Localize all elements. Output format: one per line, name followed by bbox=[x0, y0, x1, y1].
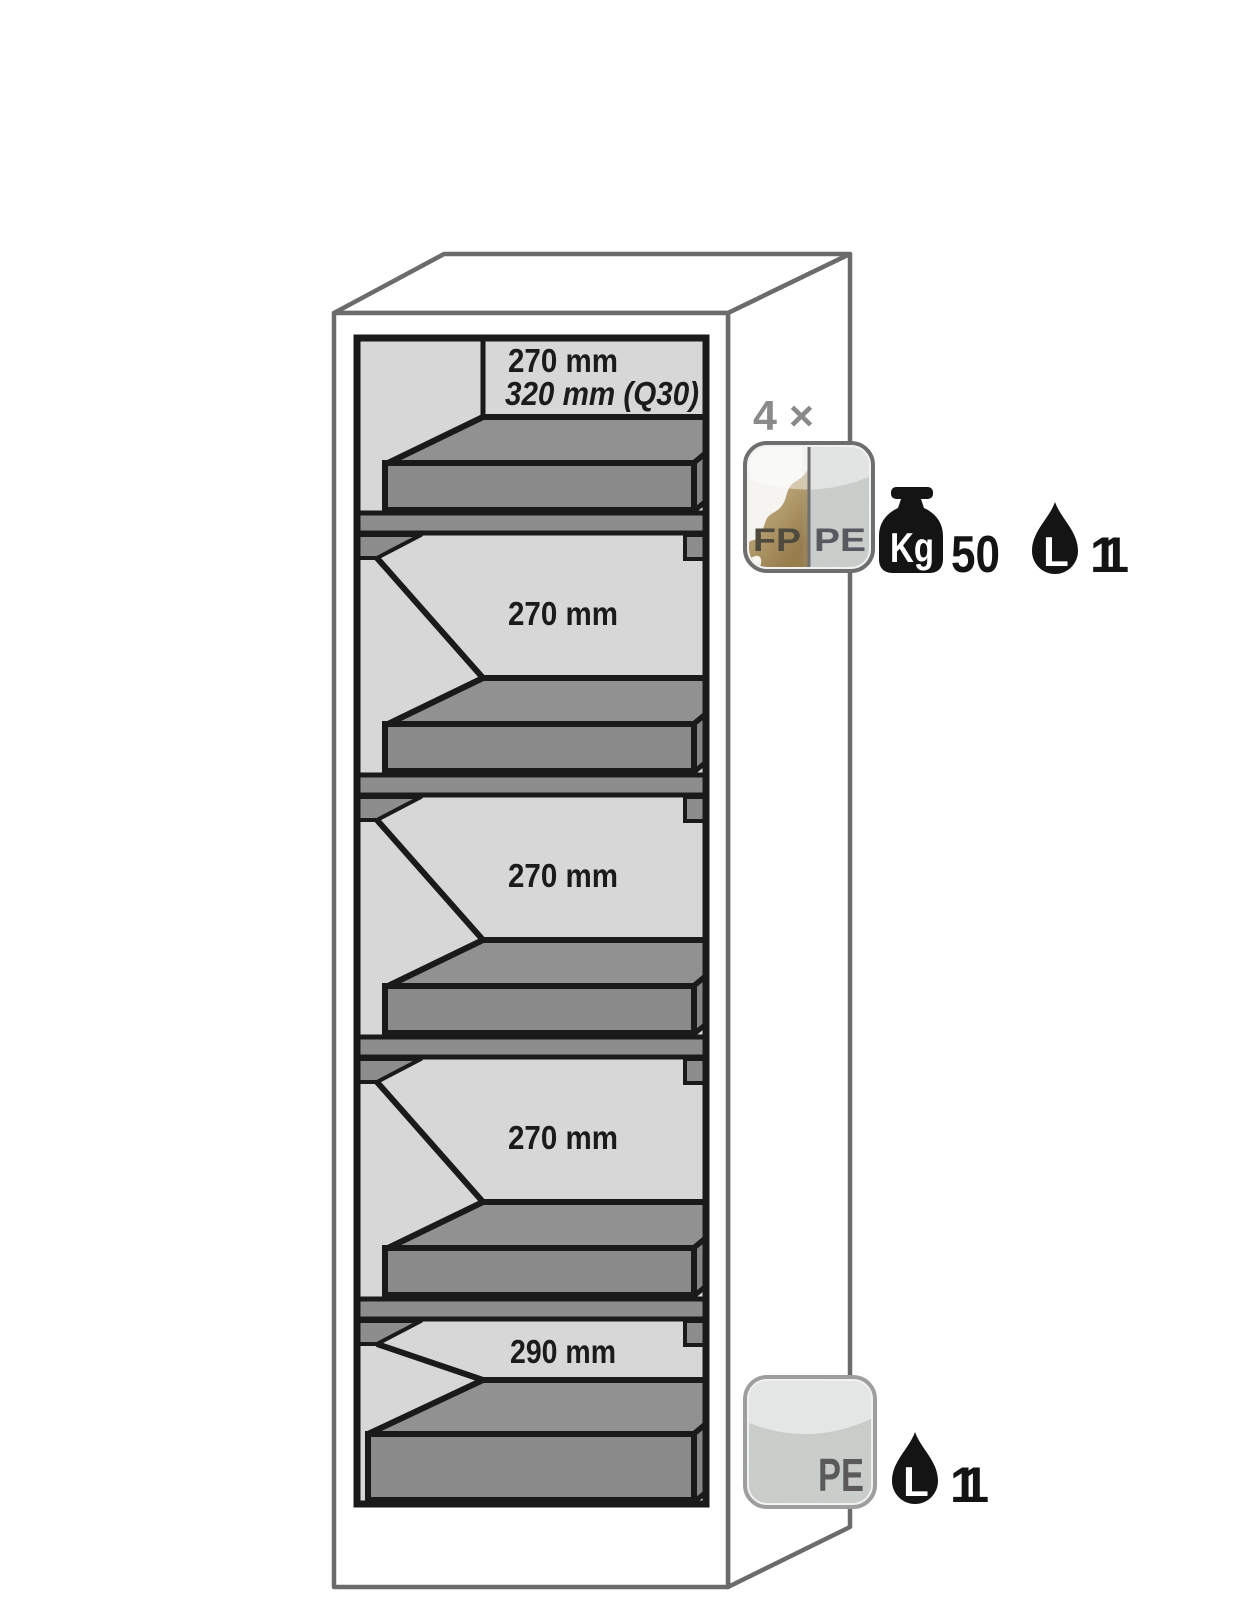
badge-gloss bbox=[749, 1381, 871, 1434]
droplet-icon: L bbox=[1032, 502, 1078, 575]
weight-icon: Kg bbox=[879, 487, 943, 573]
droplet-icon: L bbox=[892, 1432, 938, 1505]
shelf-board bbox=[357, 513, 706, 533]
compartment-1-height: 270 mm bbox=[508, 342, 618, 379]
tray-front bbox=[385, 986, 694, 1033]
pe-label: PE bbox=[814, 522, 866, 558]
compartment-3-height: 270 mm bbox=[508, 857, 618, 894]
fp-label: FP bbox=[753, 522, 801, 558]
diagram-page: 270 mm 320 mm (Q30) 270 mm bbox=[0, 0, 1241, 1624]
shelf-board bbox=[357, 1299, 706, 1319]
load-value: 50 bbox=[951, 526, 1000, 584]
sump-volume-unit: L bbox=[903, 1458, 929, 1505]
cabinet-diagram: 270 mm 320 mm (Q30) 270 mm bbox=[0, 0, 1241, 1624]
fp-pe-material-badge: FP PE bbox=[745, 443, 873, 571]
sump-annotation: PE L 11 bbox=[745, 1377, 989, 1513]
sump-tray-front bbox=[368, 1434, 694, 1500]
volume-unit: L bbox=[1043, 528, 1069, 575]
compartment-1-height-alt: 320 mm (Q30) bbox=[505, 375, 699, 412]
sump-volume-value: 11 bbox=[950, 1457, 989, 1513]
tray-quantity: 4 × bbox=[753, 392, 814, 439]
pe-material-badge: PE bbox=[745, 1377, 875, 1507]
compartment-5-height: 290 mm bbox=[510, 1333, 616, 1370]
weight-unit: Kg bbox=[890, 524, 934, 571]
compartment-2-height: 270 mm bbox=[508, 595, 618, 632]
shelf-board bbox=[357, 775, 706, 795]
sump-pe-label: PE bbox=[818, 1449, 864, 1501]
tray-front bbox=[385, 724, 694, 771]
tray-front bbox=[385, 1248, 694, 1295]
volume-value: 11 bbox=[1090, 527, 1129, 583]
shelf-board bbox=[357, 1037, 706, 1057]
tray-front bbox=[385, 463, 694, 510]
tray-annotation: 4 × FP PE Kg 50 L 11 bbox=[745, 392, 1129, 584]
compartment-4-height: 270 mm bbox=[508, 1119, 618, 1156]
